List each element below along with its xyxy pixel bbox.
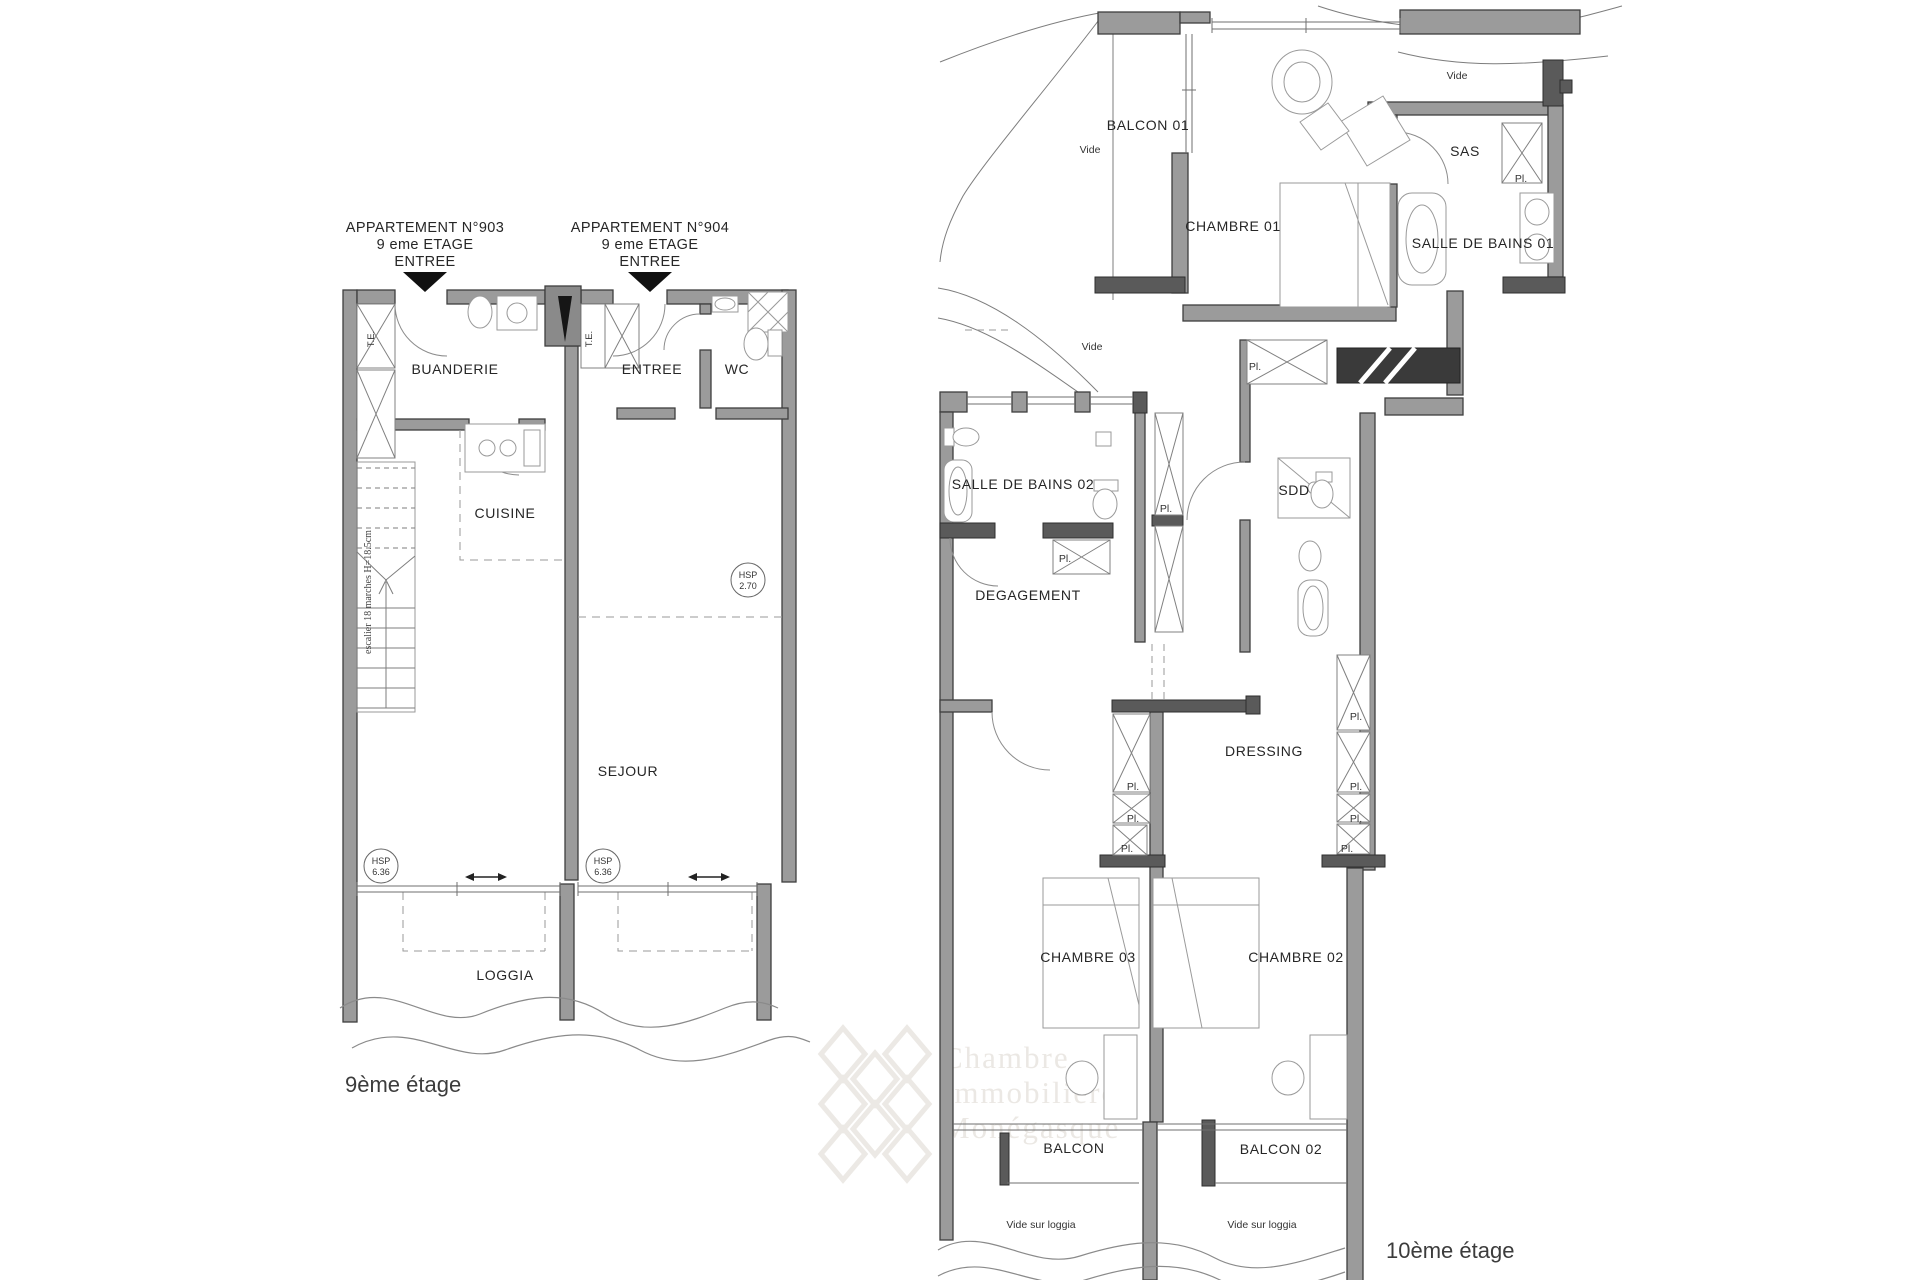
bed-icon xyxy=(1153,878,1259,1028)
desk-icon xyxy=(1310,1035,1347,1119)
plan10-dashed-lines xyxy=(965,330,1164,700)
te-closet-label-left: T.E. xyxy=(366,331,377,347)
vide-sur-loggia-right: Vide sur loggia xyxy=(1227,1219,1296,1231)
hsp-label: HSP xyxy=(372,856,391,866)
hsp-value: 6.36 xyxy=(594,867,612,877)
apartment-904-callout: APPARTEMENT N°904 9 eme ETAGE ENTREE xyxy=(571,220,729,292)
room-label-balcon01: BALCON 01 xyxy=(1107,117,1189,133)
watermark-text: Chambre Immobilière Monégasque xyxy=(942,1040,1120,1145)
room-label-sdb02: SALLE DE BAINS 02 xyxy=(952,476,1095,492)
plan10-break-lines xyxy=(938,1241,1345,1280)
pl-label-sdd-north: Pl. xyxy=(1249,361,1261,373)
room-label-cuisine: CUISINE xyxy=(475,505,536,521)
apt904-line3: ENTREE xyxy=(619,254,680,270)
room-label-chambre02: CHAMBRE 02 xyxy=(1248,949,1343,965)
chair-icon xyxy=(1272,1061,1304,1095)
room-label-wc: WC xyxy=(725,361,750,377)
floorplan-drawing: Chambre Immobilière Monégasque APPARTEME… xyxy=(0,0,1920,1280)
laundry-sink-icon xyxy=(468,296,492,328)
te-closet-label-right: T.E. xyxy=(584,331,595,347)
pl-label-dressing-r3: Pl. xyxy=(1350,813,1362,825)
sink-icon xyxy=(715,298,735,310)
plan9-break-lines xyxy=(340,997,810,1061)
hsp-badge-left: HSP 6.36 xyxy=(364,849,398,883)
chambre01-furniture xyxy=(1272,50,1410,307)
toilet-icon xyxy=(744,328,768,360)
toilet-icon xyxy=(1093,489,1117,519)
bed-icon xyxy=(1280,183,1390,307)
pl-label-sas: Pl. xyxy=(1515,173,1527,185)
pl-label-dressing-r1: Pl. xyxy=(1350,711,1362,723)
pl-label-dressing-r4: Pl. xyxy=(1341,843,1353,855)
vide-sur-loggia-left: Vide sur loggia xyxy=(1006,1219,1075,1231)
caption-9th-floor: 9ème étage xyxy=(345,1072,461,1097)
kitchen-counter-icon xyxy=(465,424,545,472)
vide-label-left: Vide xyxy=(1080,144,1101,156)
stairwell-mass xyxy=(1337,348,1460,383)
pl-label-degagement: Pl. xyxy=(1059,553,1071,565)
plan9-party-wall-block xyxy=(545,286,581,346)
room-label-balcon02: BALCON 02 xyxy=(1240,1141,1322,1157)
entrance-arrow-icon xyxy=(403,272,447,292)
loggia-glazing xyxy=(357,882,757,896)
room-label-dressing: DRESSING xyxy=(1225,743,1303,759)
hsp-value: 2.70 xyxy=(739,581,757,591)
vide-label-mid: Vide xyxy=(1082,341,1103,353)
room-label-sas: SAS xyxy=(1450,143,1480,159)
room-label-degagement: DEGAGEMENT xyxy=(975,587,1081,603)
hsp-label: HSP xyxy=(594,856,613,866)
sink-icon xyxy=(1299,541,1321,571)
room-label-chambre01: CHAMBRE 01 xyxy=(1185,218,1280,234)
apt903-line2: 9 eme ETAGE xyxy=(377,237,474,253)
chair-icon xyxy=(1066,1061,1098,1095)
hsp-label: HSP xyxy=(739,570,758,580)
sdb02-fixtures xyxy=(944,428,1118,522)
sliding-door-arrow-icon xyxy=(688,873,730,881)
pl-label-dressing-r2: Pl. xyxy=(1350,781,1362,793)
watermark-line1: Chambre xyxy=(942,1040,1070,1075)
apt904-line1: APPARTEMENT N°904 xyxy=(571,220,729,236)
room-label-balcon: BALCON xyxy=(1043,1140,1104,1156)
room-label-chambre03: CHAMBRE 03 xyxy=(1040,949,1135,965)
caption-10th-floor: 10ème étage xyxy=(1386,1238,1514,1263)
room-label-sdb01: SALLE DE BAINS 01 xyxy=(1412,235,1555,251)
sliding-door-arrow-icon xyxy=(465,873,507,881)
watermark-logo-icon xyxy=(821,1028,929,1180)
stair-note: escalier 18 marches H=18.5cm xyxy=(363,530,374,654)
sink-icon xyxy=(1525,199,1549,225)
apt904-line2: 9 eme ETAGE xyxy=(602,237,699,253)
wc-fixtures xyxy=(712,292,788,360)
hsp-value: 6.36 xyxy=(372,867,390,877)
room-label-sejour: SEJOUR xyxy=(598,763,658,779)
pl-label-corridor: Pl. xyxy=(1160,503,1172,515)
hsp-badge-right: HSP 6.36 xyxy=(586,849,620,883)
room-label-loggia: LOGGIA xyxy=(476,967,533,983)
hsp-badge-cuisine: HSP 2.70 xyxy=(731,563,765,597)
room-label-entree: ENTREE xyxy=(622,361,682,377)
room-label-sdd: SDD xyxy=(1278,482,1309,498)
pl-label-dressing-l3: Pl. xyxy=(1121,843,1133,855)
room-label-buanderie: BUANDERIE xyxy=(411,361,498,377)
toilet-icon xyxy=(953,428,979,446)
plan9-walls xyxy=(343,290,796,1022)
apt903-line3: ENTREE xyxy=(394,254,455,270)
pl-label-dressing-l1: Pl. xyxy=(1127,781,1139,793)
apt903-line1: APPARTEMENT N°903 xyxy=(346,220,504,236)
toilet-icon xyxy=(1311,480,1333,508)
toilet-tank-icon xyxy=(768,330,782,356)
floorplan-sheet: Chambre Immobilière Monégasque APPARTEME… xyxy=(0,0,1920,1280)
vide-label-top: Vide xyxy=(1447,70,1468,82)
entrance-arrow-icon xyxy=(628,272,672,292)
pl-label-dressing-l2: Pl. xyxy=(1127,813,1139,825)
chambre02-furniture xyxy=(1153,878,1347,1119)
desk-icon xyxy=(1104,1035,1137,1119)
apartment-903-callout: APPARTEMENT N°903 9 eme ETAGE ENTREE xyxy=(346,220,504,292)
washing-machine-icon xyxy=(497,296,537,330)
